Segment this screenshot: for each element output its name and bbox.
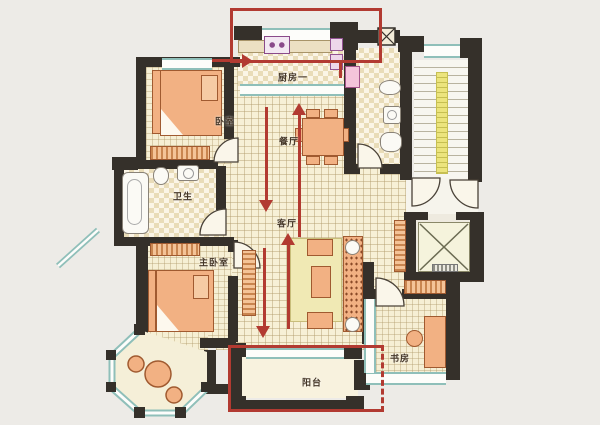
bedroom-door bbox=[214, 138, 238, 162]
dining-table bbox=[302, 118, 344, 156]
flow-arrow-up-head bbox=[292, 103, 306, 115]
dining-chair bbox=[324, 109, 338, 118]
tv-cabinet bbox=[394, 220, 406, 272]
dining-chair bbox=[306, 109, 320, 118]
toilet bbox=[379, 80, 401, 95]
bathroom-door bbox=[200, 209, 226, 235]
hall-cabinet bbox=[242, 250, 256, 316]
room-label-bathroom: 卫生 bbox=[173, 190, 193, 203]
entry-arrow bbox=[212, 59, 242, 62]
armchair bbox=[307, 312, 333, 329]
flow-arrow-up bbox=[298, 115, 301, 237]
entry-door bbox=[412, 178, 440, 206]
bathroom-sink bbox=[380, 132, 402, 152]
room-label-bedroom: 卧室 bbox=[215, 115, 235, 128]
bay-table bbox=[145, 361, 171, 387]
bedroom-wardrobe bbox=[150, 146, 210, 160]
red-segment bbox=[339, 63, 342, 78]
side-table bbox=[345, 317, 360, 332]
room-label-kitchen: 厨房一 bbox=[278, 71, 308, 84]
flow-arrow-up-head bbox=[281, 233, 295, 245]
entry-arrow-head bbox=[242, 54, 253, 68]
bathtub bbox=[122, 172, 149, 234]
dining-chair bbox=[306, 156, 320, 165]
floor-plan: 厨房一 卧室 餐厅 卫生 客厅 主卧室 书房 阳台 bbox=[0, 0, 600, 425]
toilet bbox=[153, 167, 169, 185]
study-door bbox=[376, 278, 404, 306]
elevator-x bbox=[420, 224, 468, 270]
flow-arrow-down-head bbox=[256, 326, 270, 338]
armchair bbox=[307, 239, 333, 256]
room-label-master: 主卧室 bbox=[199, 256, 229, 269]
bay-chair bbox=[166, 387, 182, 403]
flow-arrow-up bbox=[287, 245, 290, 329]
study-desk bbox=[424, 316, 446, 368]
flow-arrow-down bbox=[265, 107, 268, 202]
pillow bbox=[193, 275, 209, 299]
room-label-study: 书房 bbox=[390, 352, 410, 365]
fridge bbox=[345, 66, 360, 88]
blanket-fold bbox=[161, 109, 183, 135]
room-label-dining: 餐厅 bbox=[279, 135, 299, 148]
bedroom-bed bbox=[160, 70, 222, 136]
dining-chair bbox=[324, 156, 338, 165]
flow-arrow-down bbox=[263, 248, 266, 326]
bathroom2-door bbox=[358, 144, 382, 168]
master-bed bbox=[156, 270, 214, 332]
bathroom-sink bbox=[177, 165, 199, 181]
master-wardrobe bbox=[150, 243, 200, 256]
flow-arrow-down-head bbox=[259, 200, 273, 212]
study-chair bbox=[406, 330, 423, 347]
bay-chair bbox=[128, 356, 144, 372]
stair-door bbox=[450, 180, 478, 208]
coffee-table bbox=[311, 266, 331, 298]
master-headboard bbox=[148, 270, 156, 332]
side-table bbox=[345, 240, 360, 255]
washer bbox=[383, 106, 401, 124]
room-label-balcony: 阳台 bbox=[302, 376, 322, 389]
pillow bbox=[201, 75, 218, 101]
blanket-fold bbox=[157, 305, 179, 331]
room-label-living: 客厅 bbox=[277, 217, 297, 230]
shoe-cabinet bbox=[404, 280, 446, 294]
